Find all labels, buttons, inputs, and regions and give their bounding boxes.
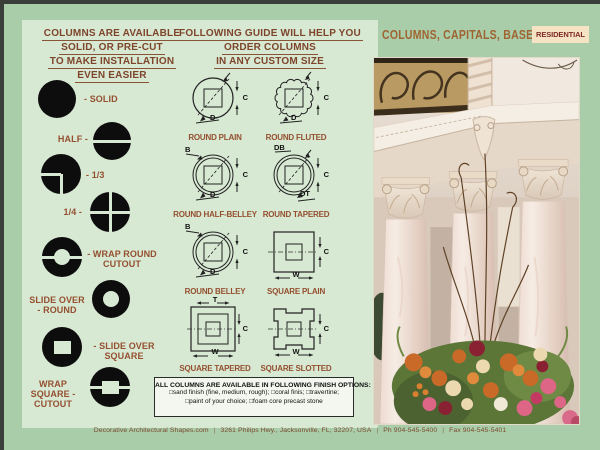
- dim-label-dt: DT: [300, 189, 310, 198]
- dim-label-c: C: [243, 93, 248, 102]
- footer-separator: |: [214, 427, 216, 434]
- footer-site: Decorative Architectural Shapes.com: [94, 427, 209, 434]
- diagram-caption: SQUARE TAPERED: [169, 364, 261, 373]
- dim-label-c: C: [243, 170, 248, 179]
- diagram-caption: ROUND HALF-BELLEY: [169, 210, 261, 219]
- footer-address: 3261 Philips Hwy., Jacksonville, FL, 322…: [221, 427, 372, 434]
- dim-label-w: W: [292, 270, 299, 279]
- footer-fax: Fax 904-545-5401: [449, 427, 506, 434]
- diagram-round-half-belley: B C D ROUND HALF-BELLEY: [173, 145, 257, 219]
- finish-options-box: ALL COLUMNS ARE AVAILABLE IN FOLLOWING F…: [154, 377, 354, 417]
- finish-options-line: □paint of your choice; □foam core precas…: [155, 398, 353, 407]
- dim-label-t: T: [213, 295, 218, 304]
- dim-label-w: W: [211, 347, 218, 356]
- page-edge-top: [0, 0, 600, 4]
- dim-label-d: D: [210, 113, 215, 122]
- dim-label-w: W: [292, 347, 299, 356]
- dim-label-c: C: [324, 324, 329, 333]
- footer-separator: |: [376, 427, 378, 434]
- cutaway-shape-slide-over-round: [92, 280, 130, 318]
- diagram-round-belley: B C D ROUND BELLEY: [173, 222, 257, 296]
- catalog-page: COLUMNS ARE AVAILABLE SOLID, OR PRE-CUT …: [0, 0, 600, 450]
- dim-label-c: C: [324, 247, 329, 256]
- guide-heading-line: IN ANY CUSTOM SIZE: [214, 55, 326, 69]
- capital-right: [519, 159, 569, 199]
- cutaway-label: - 1/3: [86, 170, 126, 180]
- cutaway-shape-slide-over-square: [42, 327, 82, 367]
- dim-label-b: B: [185, 222, 190, 231]
- page-edge-left: [0, 0, 4, 450]
- diagram-square-slotted: C W SQUARE SLOTTED: [254, 299, 338, 373]
- cutaway-label: - SLIDE OVER SQUARE: [86, 341, 162, 361]
- cutaway-shape-one-quarter: [90, 192, 130, 232]
- diagram-square-plain: C W SQUARE PLAIN: [254, 222, 338, 296]
- diagram-caption: SQUARE PLAIN: [250, 287, 342, 296]
- cutaway-label: WRAP SQUARE - CUTOUT: [20, 379, 86, 409]
- availability-heading: COLUMNS ARE AVAILABLE SOLID, OR PRE-CUT …: [28, 27, 196, 83]
- guide-heading-line: ORDER COLUMNS: [222, 41, 318, 55]
- dim-label-d: D: [210, 190, 215, 199]
- footer: Decorative Architectural Shapes.com|3261…: [0, 427, 600, 434]
- cutaway-shape-half: [93, 122, 131, 160]
- columns-photo: [373, 57, 580, 425]
- page-title: COLUMNS, CAPITALS, BASES,: [382, 28, 544, 42]
- dim-label-c: C: [243, 324, 248, 333]
- cutaway-label: SLIDE OVER - ROUND: [28, 295, 86, 315]
- cutaway-label: - SOLID: [84, 94, 144, 104]
- cutaway-label: 1/4 -: [44, 207, 82, 217]
- dim-label-d: D: [291, 113, 296, 122]
- footer-phone: Ph 904-545-5400: [383, 427, 437, 434]
- guide-heading-line: FOLLOWING GUIDE WILL HELP YOU: [177, 27, 363, 41]
- diagram-caption: ROUND FLUTED: [250, 133, 342, 142]
- diagram-caption: ROUND TAPERED: [250, 210, 342, 219]
- dim-label-db: DB: [274, 143, 285, 152]
- dim-label-c: C: [324, 170, 329, 179]
- availability-heading-line: SOLID, OR PRE-CUT: [59, 41, 165, 55]
- columns-photo-art: [374, 58, 579, 424]
- cutaway-label: HALF -: [46, 134, 88, 144]
- availability-heading-line: EVEN EASIER: [75, 69, 148, 83]
- availability-heading-line: COLUMNS ARE AVAILABLE: [42, 27, 182, 41]
- diagram-caption: ROUND PLAIN: [169, 133, 261, 142]
- capital-left: [382, 177, 430, 218]
- cutaway-shape-solid: [38, 80, 76, 118]
- finish-options-line: □sand finish (fine, medium, rough); □cor…: [155, 389, 353, 398]
- residential-badge: RESIDENTIAL: [532, 26, 589, 43]
- finish-options-title: ALL COLUMNS ARE AVAILABLE IN FOLLOWING F…: [155, 382, 353, 389]
- diagram-square-tapered: T C W SQUARE TAPERED: [173, 299, 257, 373]
- diagram-round-tapered: DB C DT ROUND TAPERED: [254, 145, 338, 219]
- cutaway-shape-wrap-square-cutout: [90, 367, 130, 407]
- guide-heading: FOLLOWING GUIDE WILL HELP YOU ORDER COLU…: [172, 27, 368, 69]
- diagram-round-fluted: C D ROUND FLUTED: [254, 68, 338, 142]
- cutaway-shape-one-third: [41, 154, 81, 194]
- dim-label-d: D: [210, 267, 215, 276]
- cutaway-shape-wrap-round-cutout: [42, 237, 82, 277]
- capital-center: [449, 171, 497, 211]
- dim-label-b: B: [185, 145, 190, 154]
- dim-label-c: C: [324, 93, 329, 102]
- availability-heading-line: TO MAKE INSTALLATION: [48, 55, 177, 69]
- diagram-caption: SQUARE SLOTTED: [250, 364, 342, 373]
- diagram-round-plain: C D ROUND PLAIN: [173, 68, 257, 142]
- dim-label-c: C: [243, 247, 248, 256]
- cutaway-label: - WRAP ROUND CUTOUT: [86, 249, 158, 269]
- footer-separator: |: [442, 427, 444, 434]
